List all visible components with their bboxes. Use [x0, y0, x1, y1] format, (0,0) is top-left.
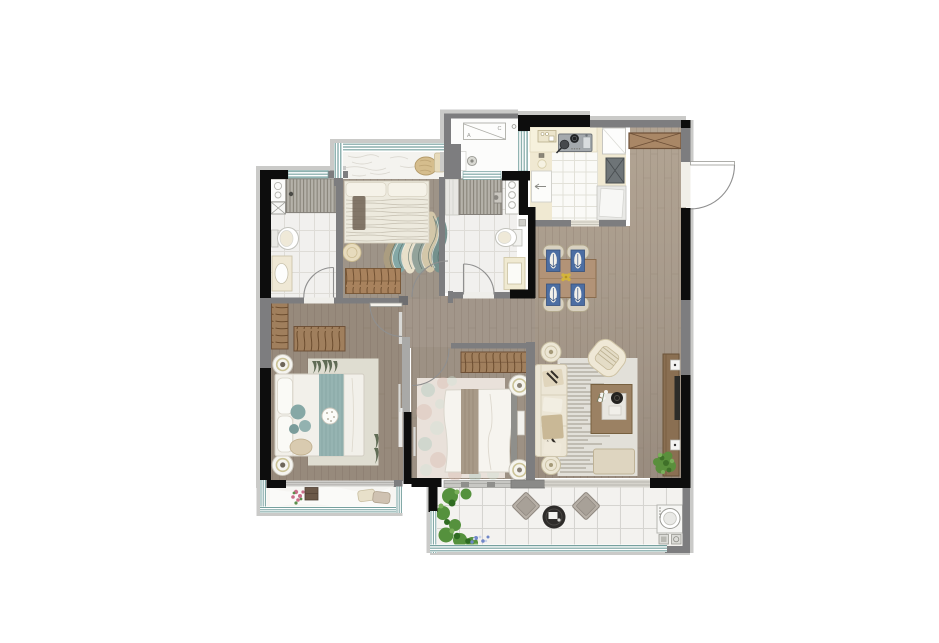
- svg-text:A: A: [467, 133, 471, 139]
- svg-text:C: C: [498, 126, 502, 132]
